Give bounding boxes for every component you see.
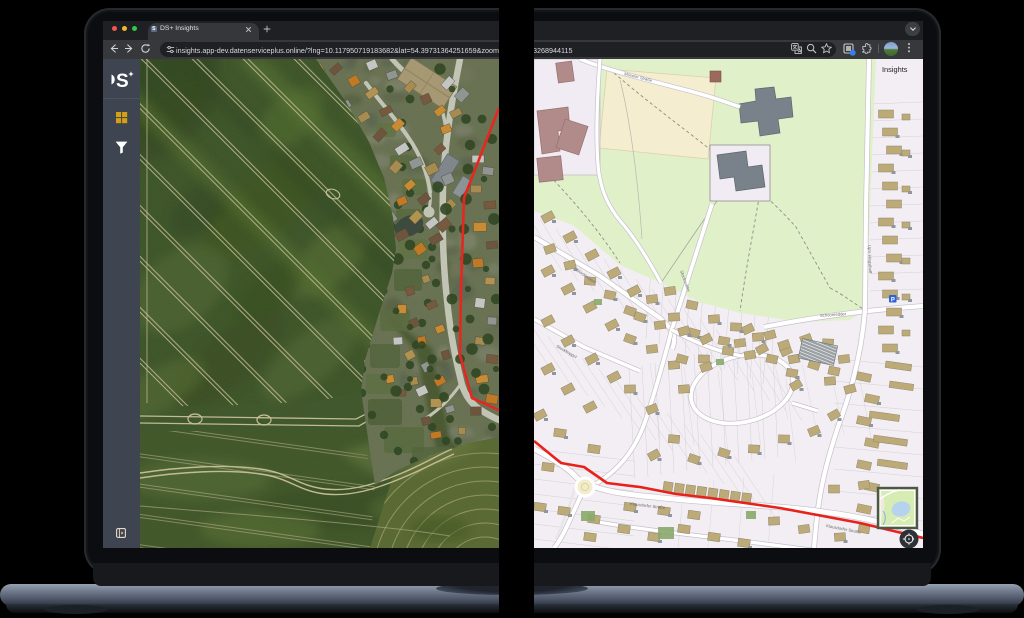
svg-text:Up'n Hingsthoff: Up'n Hingsthoff: [867, 245, 873, 274]
svg-text:P: P: [891, 297, 895, 303]
svg-text:S: S: [116, 71, 129, 92]
svg-text:Insights: Insights: [882, 65, 908, 74]
